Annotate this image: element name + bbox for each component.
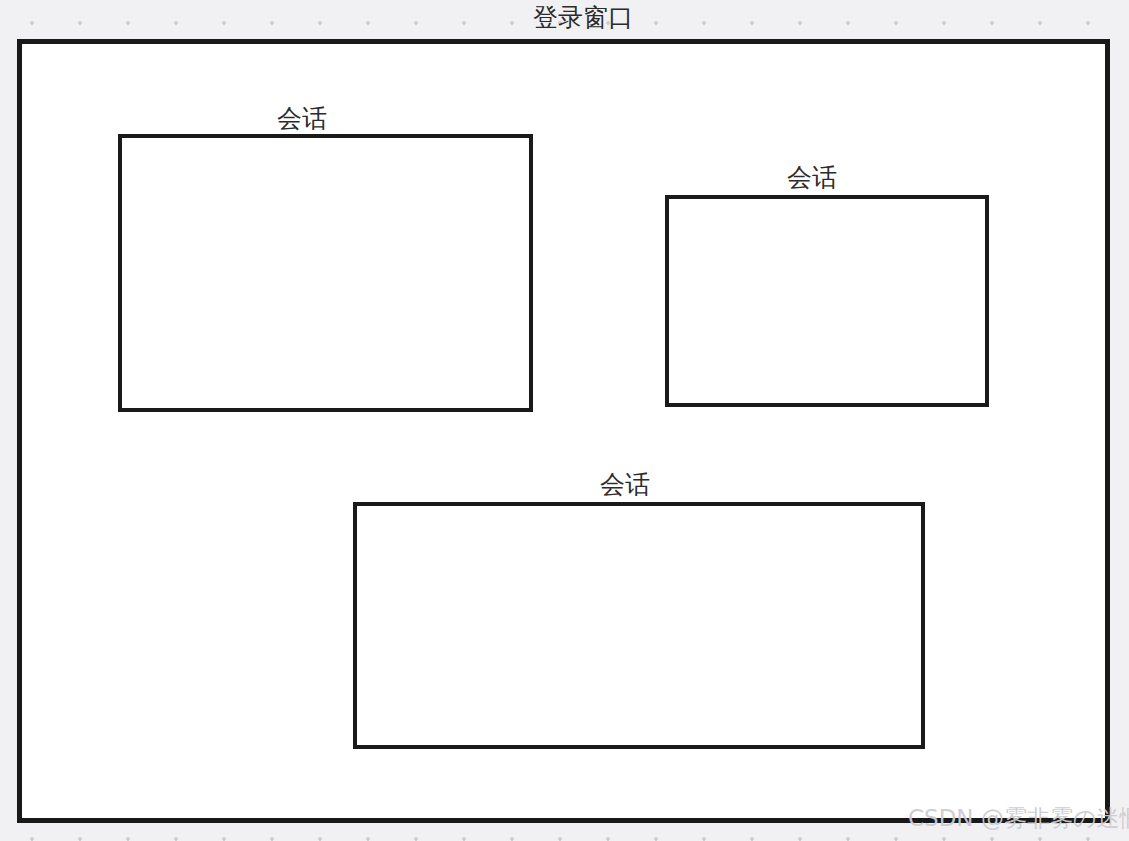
session-3-box [353, 502, 925, 749]
session-1-label: 会话 [277, 106, 327, 131]
login-window-title: 登录窗口 [533, 5, 633, 30]
session-2-box [665, 195, 989, 407]
session-2-label: 会话 [787, 165, 837, 190]
session-1-box [118, 134, 533, 412]
session-3-label: 会话 [600, 472, 650, 497]
csdn-watermark: CSDN @雾非雾の迷惘 [908, 806, 1129, 831]
